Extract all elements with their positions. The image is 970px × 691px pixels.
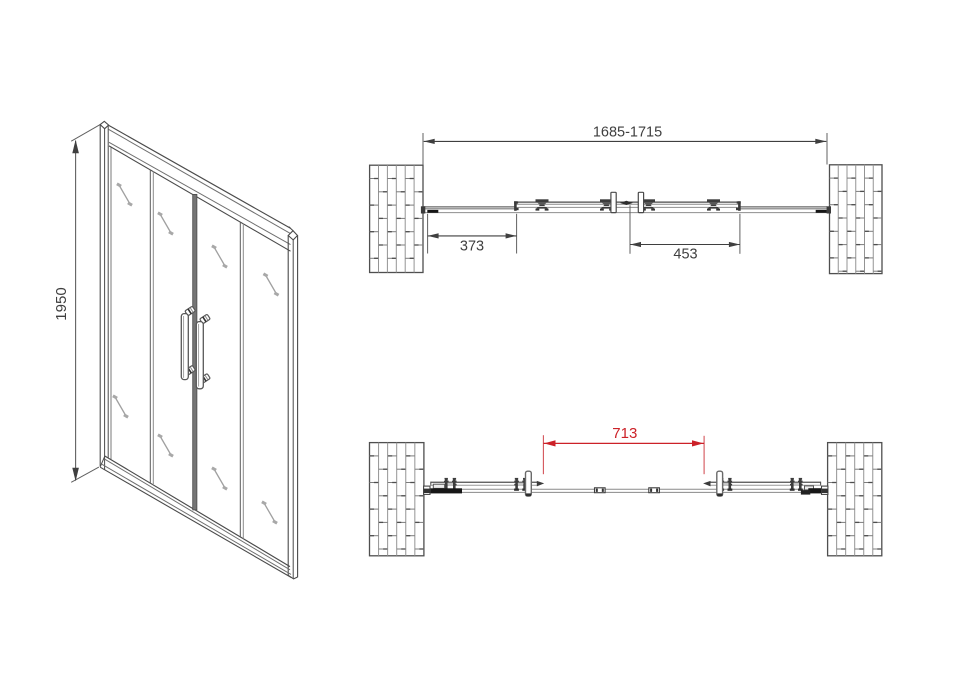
- svg-text:453: 453: [673, 246, 697, 262]
- svg-text:713: 713: [612, 425, 637, 442]
- svg-text:1950: 1950: [53, 287, 70, 320]
- svg-text:373: 373: [460, 239, 484, 255]
- svg-text:1685-1715: 1685-1715: [593, 125, 662, 141]
